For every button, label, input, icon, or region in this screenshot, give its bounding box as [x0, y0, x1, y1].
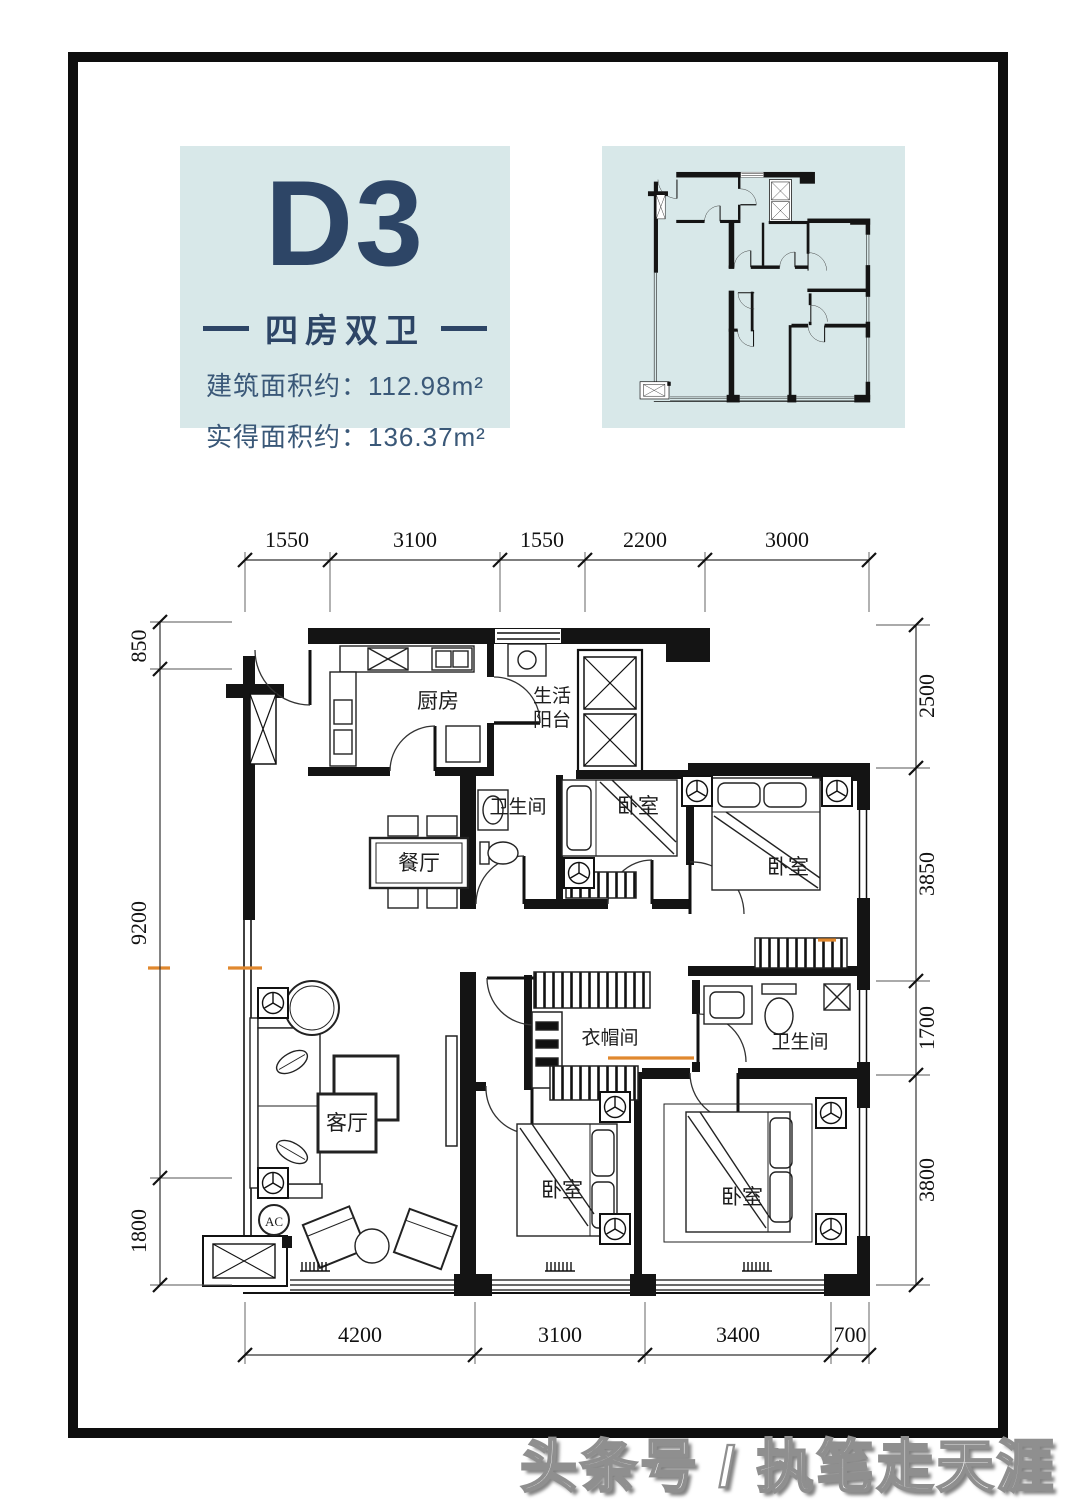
thumbnail-panel: [602, 146, 905, 428]
watermark: 头条号 / 执笔走天涯: [520, 1421, 1057, 1503]
layout-type-row: 四房双卫: [180, 304, 510, 352]
unit-code: D3: [180, 148, 510, 298]
built-area: 建筑面积约：112.98m²: [206, 366, 510, 403]
unit-info-panel: D3 四房双卫 建筑面积约：112.98m² 实得面积约：136.37m²: [180, 146, 510, 428]
dash-left: [203, 326, 249, 331]
dash-right: [441, 326, 487, 331]
actual-area: 实得面积约：136.37m²: [206, 417, 510, 454]
layout-type: 四房双卫: [265, 304, 425, 352]
page: D3 四房双卫 建筑面积约：112.98m² 实得面积约：136.37m²: [0, 0, 1080, 1504]
